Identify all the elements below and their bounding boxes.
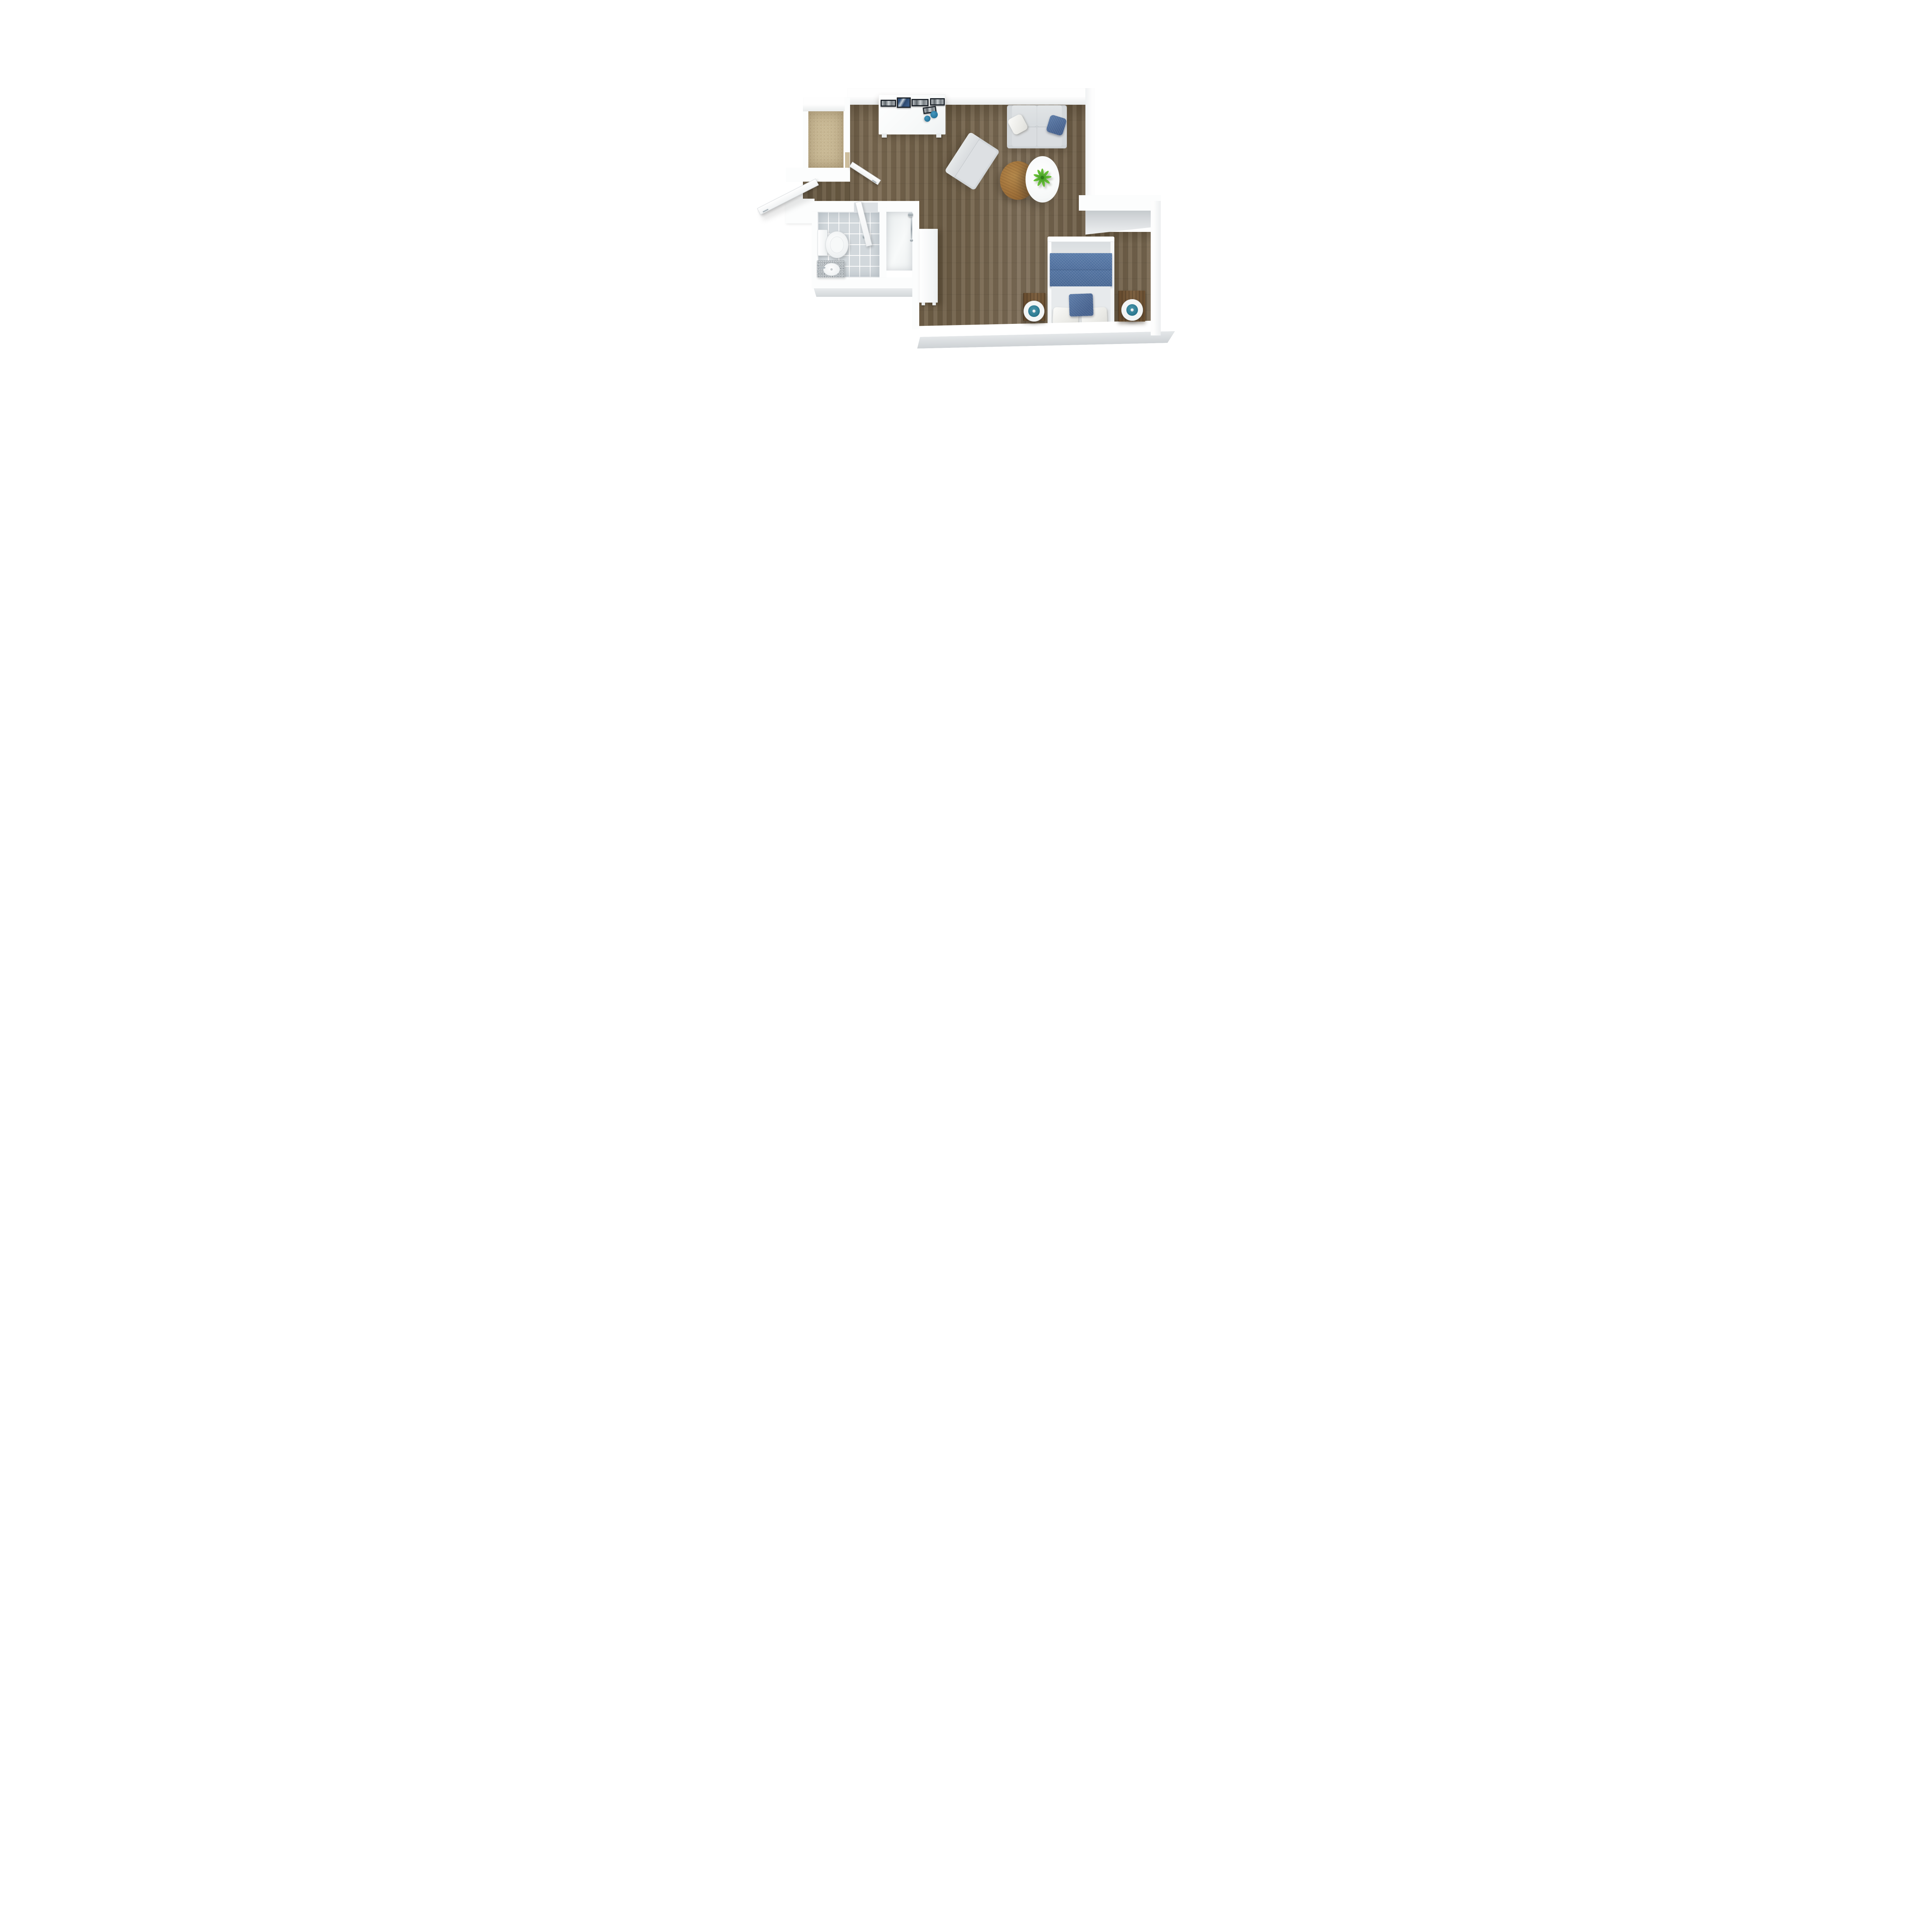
faucet-handle-bottom bbox=[817, 271, 819, 272]
sofa bbox=[1007, 105, 1067, 148]
frame-photo bbox=[882, 101, 895, 106]
wardrobe-leg-right bbox=[932, 303, 936, 305]
living-west-lower-wall bbox=[912, 201, 919, 329]
closet-south-wall-block bbox=[786, 168, 850, 182]
frame-photo bbox=[931, 99, 944, 104]
bathroom-south-wall bbox=[812, 278, 917, 288]
sideboard-leg-left bbox=[882, 134, 887, 138]
plant-center bbox=[1041, 176, 1044, 179]
step-wall-face bbox=[1085, 209, 1159, 235]
wardrobe bbox=[919, 229, 938, 303]
bed-blanket bbox=[1050, 253, 1112, 286]
living-east-wall bbox=[1085, 88, 1095, 201]
bed-footboard bbox=[1048, 237, 1114, 242]
floorplan-stage bbox=[663, 0, 1269, 428]
faucet-handle-top bbox=[817, 264, 819, 266]
toilet-bowl bbox=[825, 231, 849, 258]
wardrobe-leg-left bbox=[922, 303, 925, 305]
picture-frame-3 bbox=[912, 99, 929, 106]
toilet-lid-inner bbox=[830, 237, 844, 253]
decor-bowl-small bbox=[924, 116, 930, 122]
frame-photo bbox=[913, 100, 927, 105]
bed-duvet-top bbox=[1051, 242, 1111, 254]
picture-frame-1 bbox=[881, 100, 896, 107]
picture-frame-4 bbox=[930, 98, 945, 106]
bedroom-east-wall bbox=[1151, 201, 1161, 335]
potted-plant bbox=[1034, 169, 1051, 186]
sideboard-leg-right bbox=[936, 134, 941, 138]
shower-head bbox=[908, 212, 913, 217]
vanity-sink bbox=[823, 263, 840, 276]
frame-photo bbox=[898, 99, 910, 107]
table-lamp-right bbox=[1121, 299, 1143, 321]
picture-frame-2 bbox=[897, 97, 911, 108]
floor-shadow-west bbox=[849, 104, 862, 201]
shower-knob bbox=[910, 239, 913, 242]
sink-drain bbox=[830, 268, 833, 271]
decor-bowl-large bbox=[930, 111, 938, 118]
table-lamp-left bbox=[1024, 301, 1044, 322]
bathroom-south-wall-face bbox=[814, 288, 917, 297]
bed-pillow-blue bbox=[1069, 293, 1094, 317]
closet-carpet-floor bbox=[808, 111, 844, 168]
shower-floor bbox=[886, 212, 912, 271]
shower-riser-bar bbox=[911, 215, 912, 239]
closet-west-wall bbox=[803, 111, 808, 173]
bathroom-shower-divider-wall bbox=[879, 207, 886, 278]
faucet bbox=[818, 267, 825, 269]
bed bbox=[1048, 237, 1114, 328]
closet-north-wall bbox=[803, 97, 850, 111]
step-wall-top bbox=[1079, 195, 1161, 211]
